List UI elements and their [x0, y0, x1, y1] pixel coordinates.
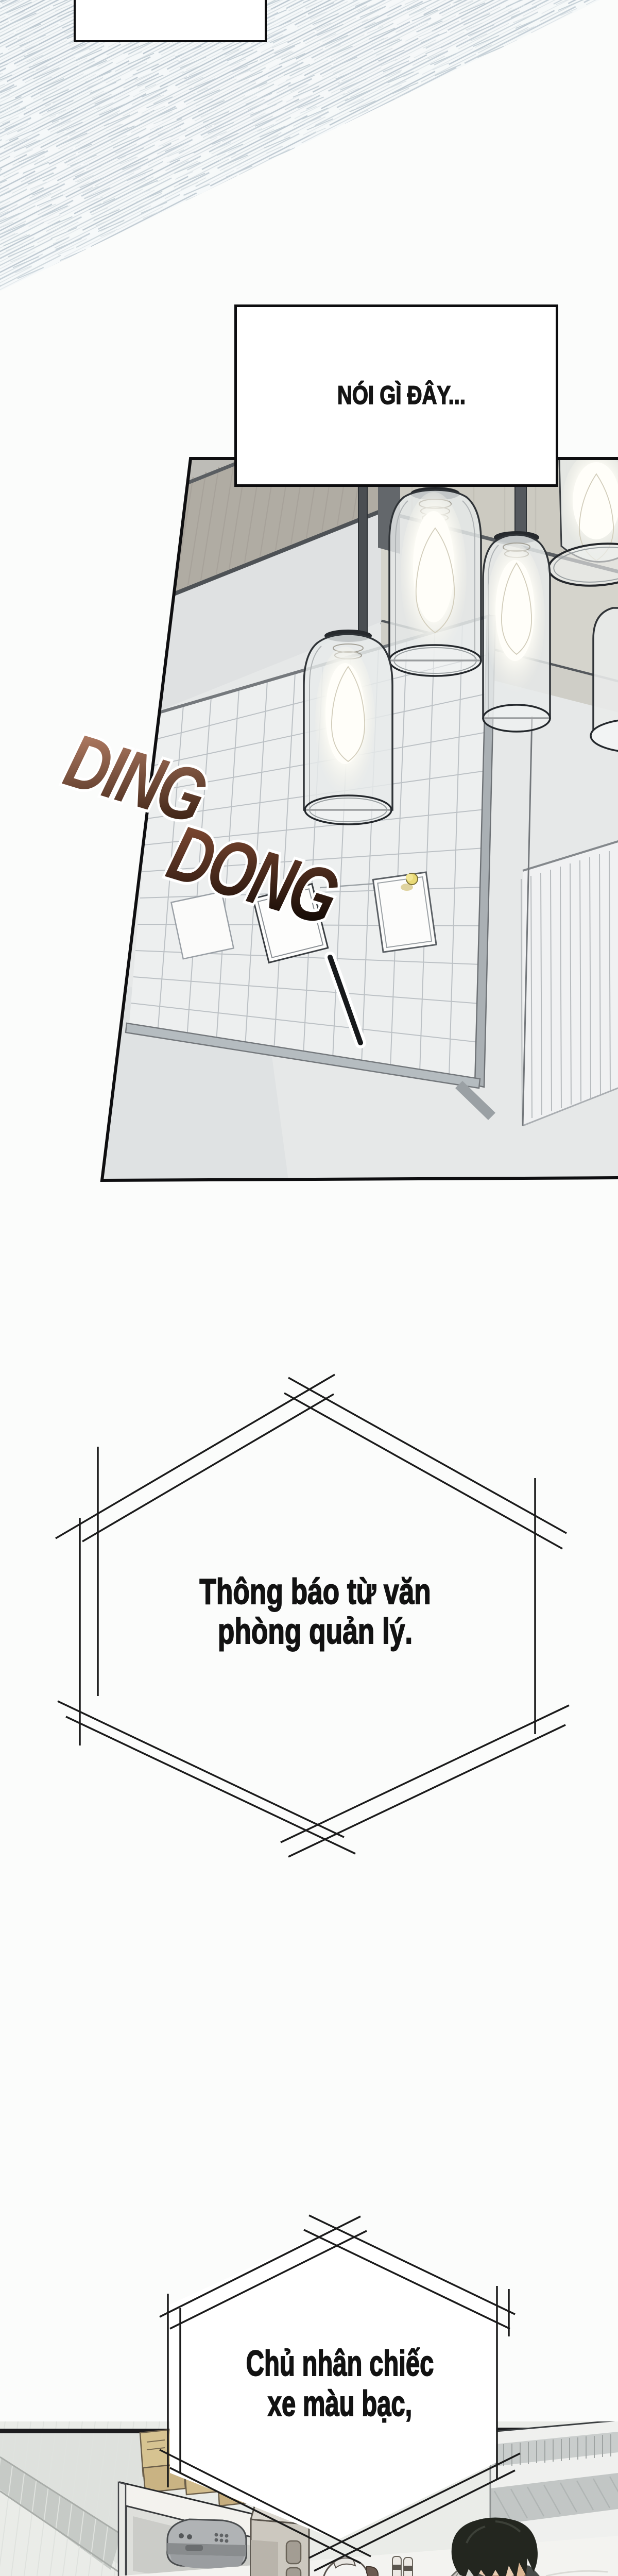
svg-text:DONG: DONG — [159, 808, 347, 942]
